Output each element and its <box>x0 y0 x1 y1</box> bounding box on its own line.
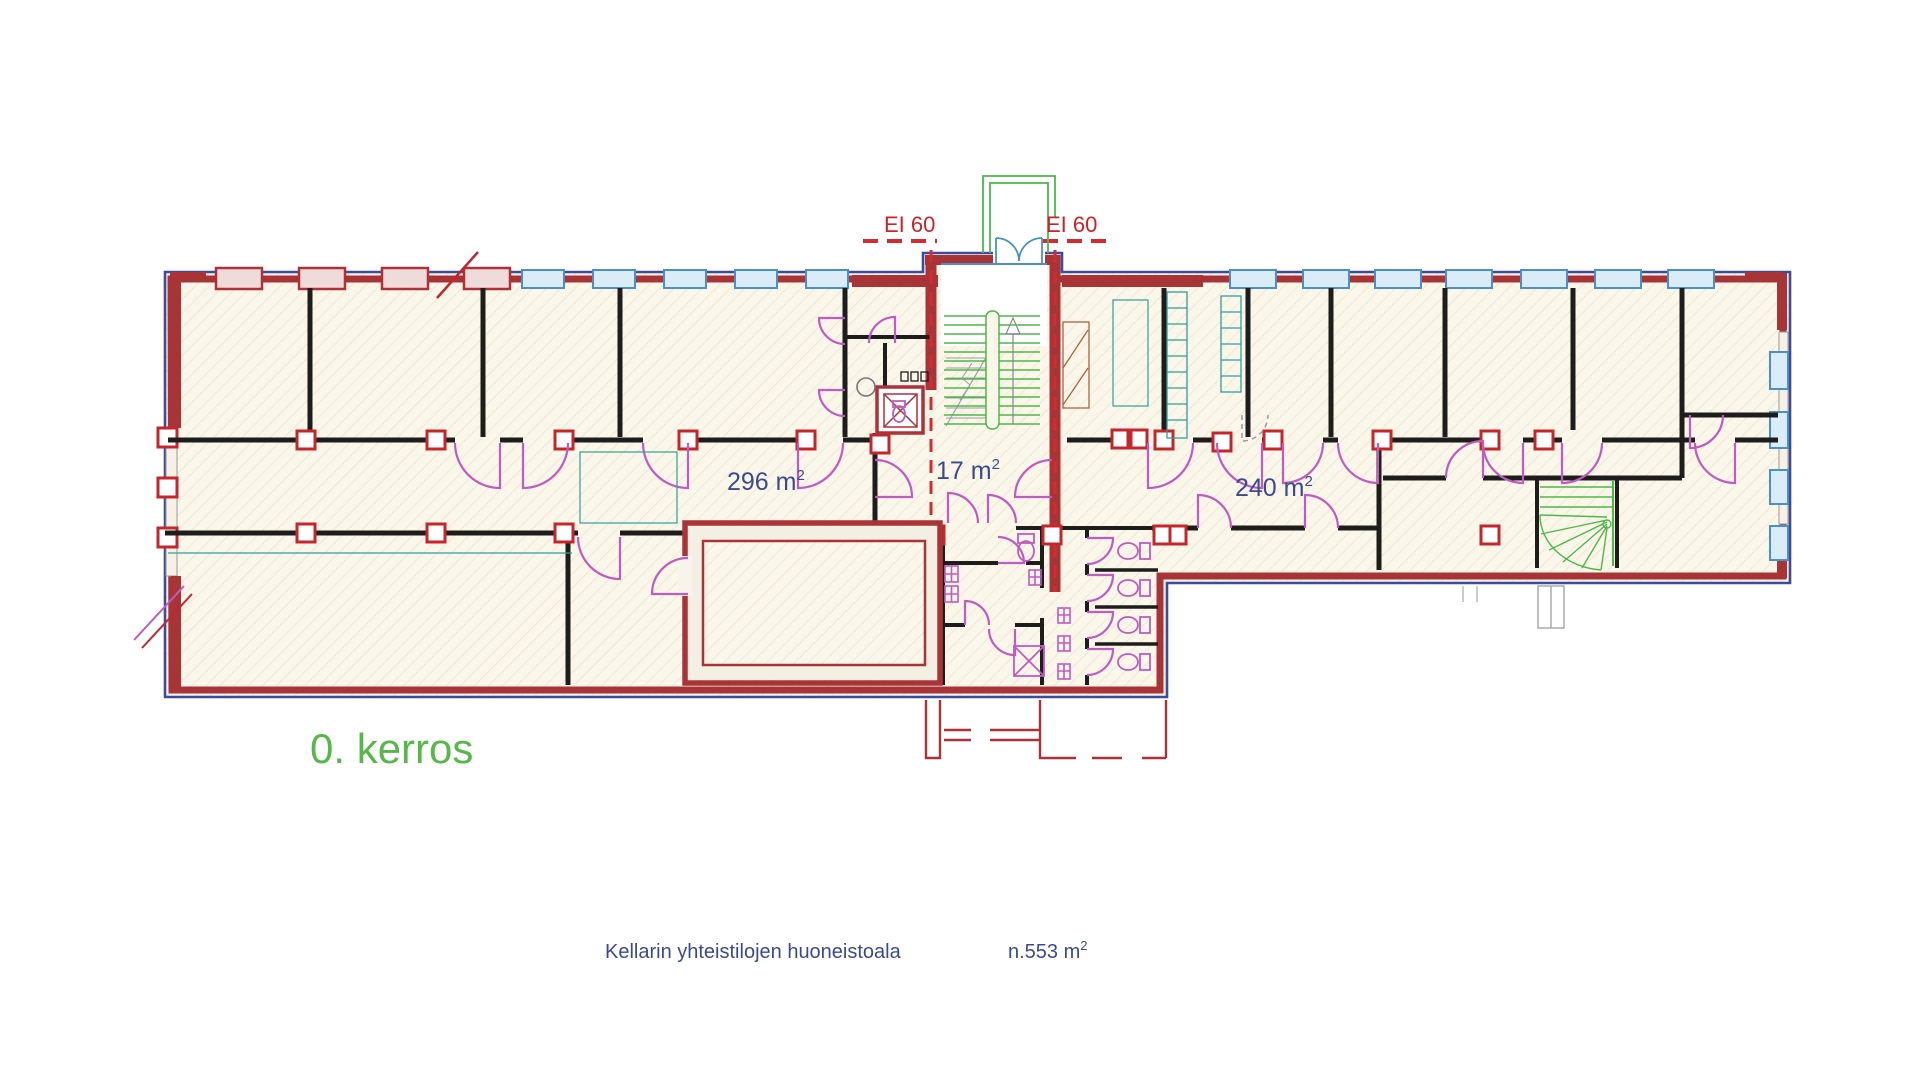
floor-plan-drawing: EI 60 EI 60 296 m2 17 m2 240 m2 0. kerro… <box>0 0 1920 1080</box>
column <box>297 524 315 542</box>
window-blue <box>1668 270 1714 288</box>
window-blue <box>1230 270 1276 288</box>
exterior-existing-stair <box>1463 586 1564 628</box>
room-area-label-296: 296 m2 <box>727 467 805 496</box>
floor-title: 0. kerros <box>310 725 473 772</box>
column <box>1481 526 1499 544</box>
window-blue <box>1446 270 1492 288</box>
room-area-label-240: 240 m2 <box>1235 473 1313 502</box>
window-red <box>464 268 510 289</box>
window-blue <box>1375 270 1421 288</box>
shelter-door-gap <box>678 556 692 596</box>
column <box>1043 526 1061 544</box>
stair-stringer <box>986 311 999 429</box>
column <box>555 431 573 449</box>
window-blue <box>735 270 777 288</box>
window-blue <box>1303 270 1349 288</box>
column <box>1373 431 1391 449</box>
entrance-ramp-lines <box>944 730 1040 740</box>
column <box>797 431 815 449</box>
column <box>1155 431 1173 449</box>
window-blue <box>1521 270 1567 288</box>
column <box>555 524 573 542</box>
window-red <box>382 268 428 289</box>
column <box>1264 431 1282 449</box>
shelter-room <box>652 523 940 683</box>
entrance-rail <box>1040 700 1076 758</box>
exterior-entrance-stair <box>926 700 1166 758</box>
window-blue <box>522 270 564 288</box>
wall-pilaster <box>158 478 177 497</box>
column <box>427 431 445 449</box>
column <box>297 431 315 449</box>
window-blue <box>664 270 706 288</box>
column <box>427 524 445 542</box>
window-blue <box>1595 270 1641 288</box>
canopy-outline <box>990 183 1048 253</box>
window-blue <box>593 270 635 288</box>
entrance-rail <box>926 700 940 758</box>
column <box>1170 526 1186 544</box>
column <box>1535 431 1553 449</box>
shelter-inner-wall <box>703 541 925 665</box>
window-blue <box>1770 352 1788 389</box>
column <box>1213 433 1231 451</box>
window-blue <box>1770 470 1788 504</box>
window-red <box>299 268 345 289</box>
room-area-label-17: 17 m2 <box>936 456 1000 485</box>
window-blue <box>806 270 848 288</box>
footer-area-value: n.553 m2 <box>1008 938 1088 963</box>
column <box>1112 430 1128 448</box>
window-blue <box>1770 526 1788 560</box>
column <box>1154 526 1170 544</box>
windows-blue-top-right <box>1230 270 1714 288</box>
fire-rating-label-right: EI 60 <box>1046 212 1097 237</box>
footer-caption: Kellarin yhteistilojen huoneistoala <box>605 941 902 963</box>
elevator <box>877 387 923 433</box>
floor-plan-page: EI 60 EI 60 296 m2 17 m2 240 m2 0. kerro… <box>0 0 1920 1080</box>
fire-rating-label-left: EI 60 <box>884 212 935 237</box>
column <box>1131 430 1147 448</box>
column <box>871 435 889 453</box>
window-red <box>216 268 262 289</box>
left-wall-unrated <box>166 430 177 576</box>
